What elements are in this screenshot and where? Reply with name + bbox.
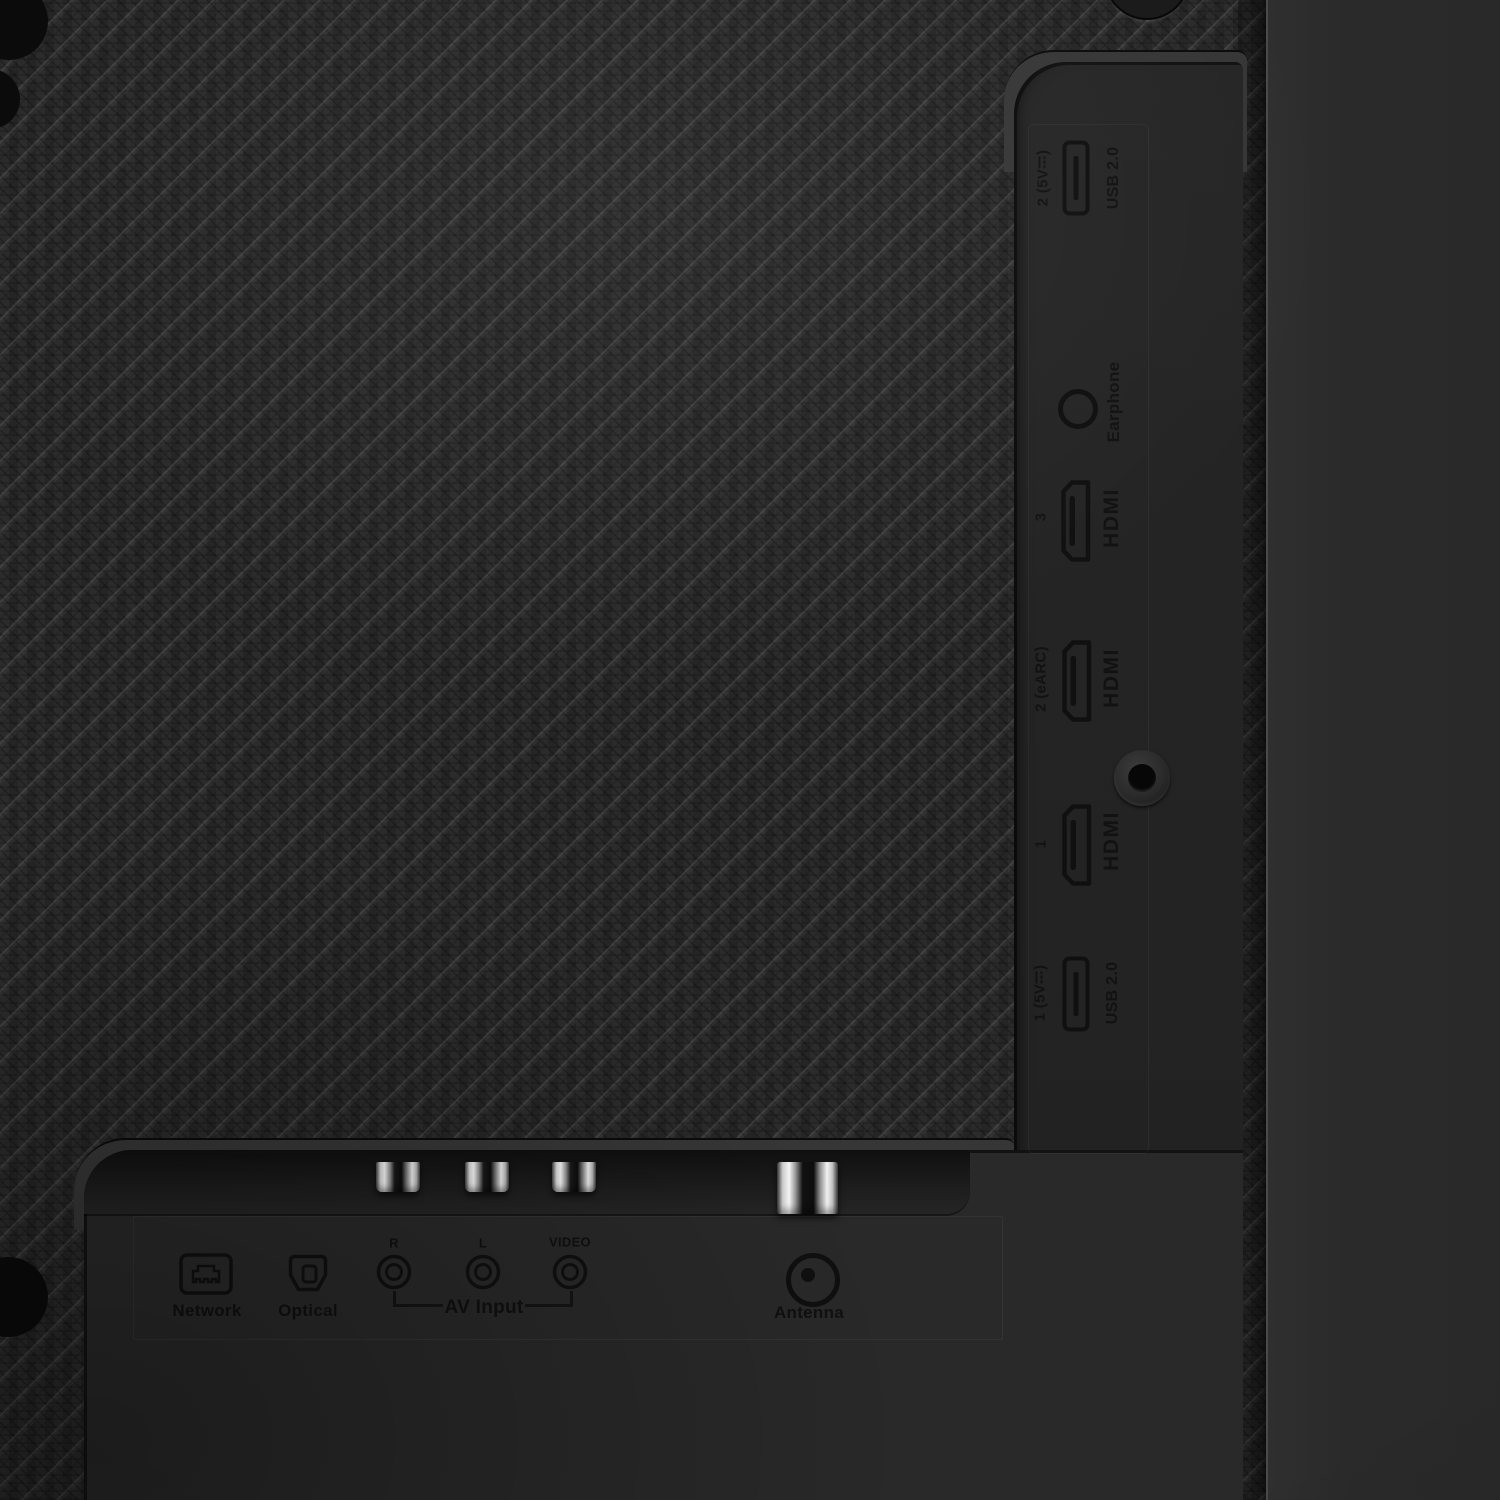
usb-1-number-label: 1 (5V)	[1032, 965, 1049, 1022]
rca-plug-metal-l	[465, 1162, 509, 1192]
av-bracket-line	[570, 1291, 573, 1307]
av-bracket-line	[393, 1304, 443, 1307]
screw-boss-hole	[1128, 764, 1156, 792]
optical-label: Optical	[278, 1301, 338, 1321]
ethernet-port-icon	[179, 1253, 233, 1295]
rca-jack-icon	[465, 1254, 501, 1290]
earphone-label: Earphone	[1104, 362, 1124, 443]
dc-symbol-icon	[1037, 155, 1048, 169]
optical-port-icon	[286, 1252, 330, 1294]
av-input-group-label: AV Input	[444, 1297, 523, 1319]
hdmi-2-number-label: 2 (eARC)	[1033, 646, 1050, 712]
side-edge-column	[1266, 0, 1500, 1500]
hdmi-3-number-label: 3	[1033, 513, 1050, 522]
dc-symbol-icon	[1034, 970, 1045, 984]
usb-port-icon	[1062, 140, 1090, 216]
earphone-jack-icon	[1058, 389, 1098, 429]
rca-jack-icon	[376, 1254, 412, 1290]
av-bracket-line	[525, 1304, 572, 1307]
hdmi-1-type-label: HDMI	[1100, 811, 1124, 871]
usb-1-type-label: USB 2.0	[1104, 962, 1122, 1025]
coax-antenna-center-dot	[801, 1268, 815, 1282]
hdmi-port-icon	[1060, 640, 1092, 722]
rca-plug-metal-r	[376, 1162, 420, 1192]
network-label: Network	[172, 1301, 241, 1321]
coax-antenna-icon	[786, 1253, 840, 1307]
hdmi-port-icon	[1060, 804, 1092, 886]
usb-2-type-label: USB 2.0	[1105, 147, 1123, 210]
tv-rear-panel-photo: 2 (5V) USB 2.0 Earphone 3 HDMI 2 (eARC) …	[0, 0, 1500, 1500]
hdmi-1-number-label: 1	[1033, 840, 1050, 849]
av-r-label: R	[389, 1236, 399, 1251]
antenna-label: Antenna	[774, 1303, 844, 1323]
av-video-label: VIDEO	[549, 1235, 591, 1250]
usb-port-icon	[1062, 956, 1090, 1032]
av-l-label: L	[479, 1236, 487, 1251]
hdmi-2-type-label: HDMI	[1100, 648, 1124, 708]
hdmi-port-icon	[1059, 480, 1091, 562]
rca-plug-metal-video	[552, 1162, 596, 1192]
usb-2-number-label: 2 (5V)	[1035, 150, 1052, 207]
antenna-connector-metal	[777, 1162, 838, 1214]
rca-jack-icon	[552, 1254, 588, 1290]
hdmi-3-type-label: HDMI	[1100, 488, 1124, 548]
